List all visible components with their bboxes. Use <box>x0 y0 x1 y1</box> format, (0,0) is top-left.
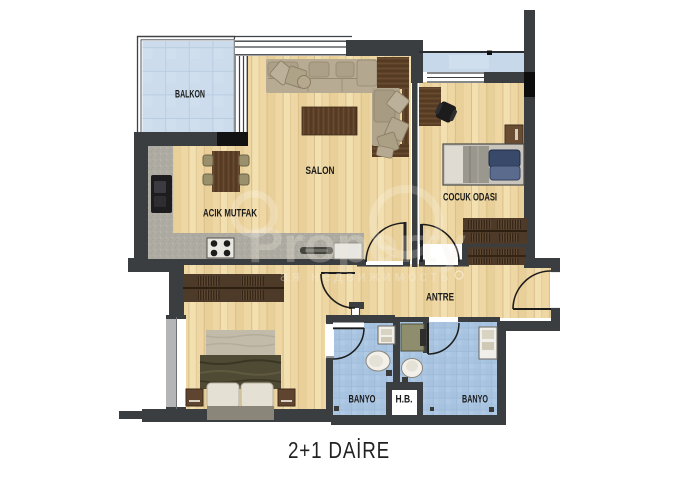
svg-text:BANYO: BANYO <box>462 394 488 406</box>
svg-text:BANYO: BANYO <box>349 394 376 406</box>
svg-text:2+1 DAİRE: 2+1 DAİRE <box>288 437 390 463</box>
svg-text:ACIK MUTFAK: ACIK MUTFAK <box>203 208 257 220</box>
svg-text:COCUK ODASI: COCUK ODASI <box>443 192 497 204</box>
svg-text:ANTRE: ANTRE <box>426 292 454 304</box>
svg-text:BALKON: BALKON <box>175 89 205 101</box>
svg-text:SALON: SALON <box>306 165 335 177</box>
svg-text:H.B.: H.B. <box>396 394 413 406</box>
svg-text:ая недвижимость: ая недвижимость <box>280 269 452 285</box>
svg-text:Property: Property <box>248 217 466 273</box>
